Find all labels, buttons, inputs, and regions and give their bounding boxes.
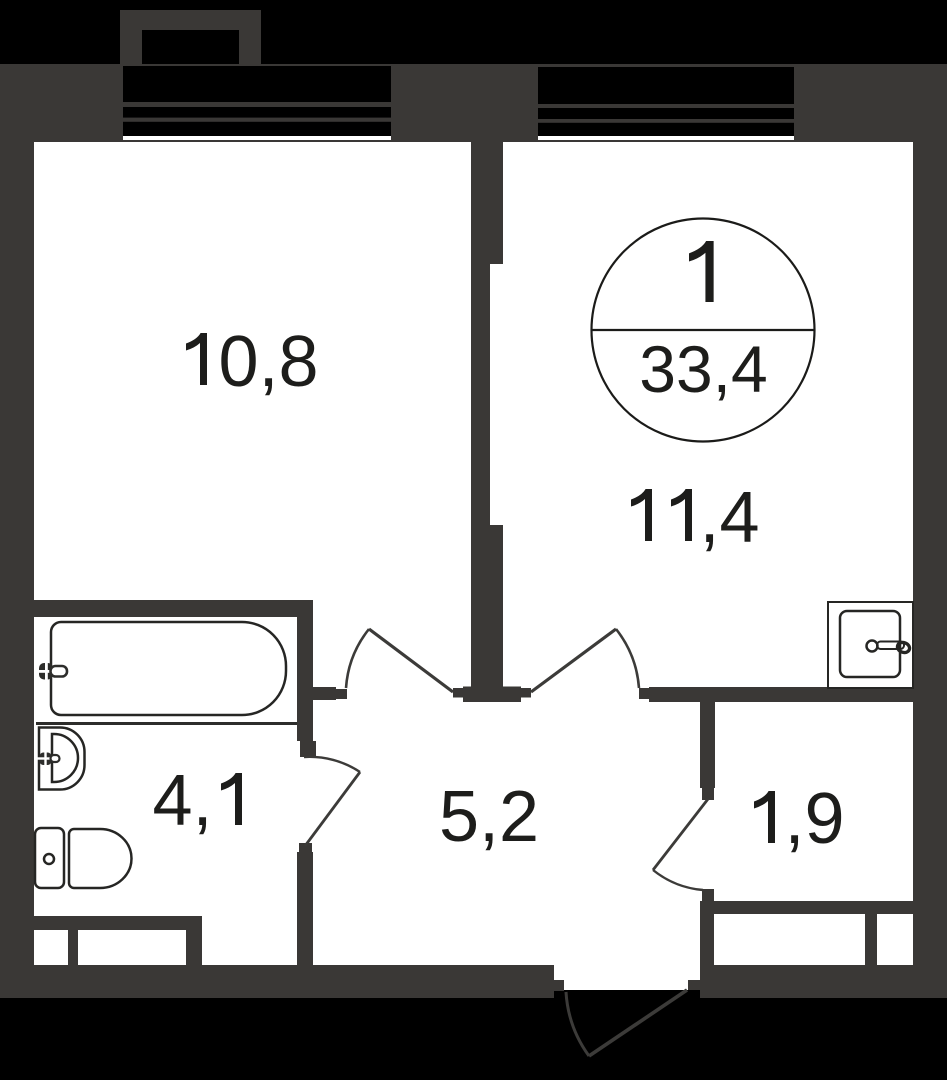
svg-text:,9: ,9 <box>785 779 845 859</box>
svg-text:0,8: 0,8 <box>219 322 319 402</box>
svg-text:5,2: 5,2 <box>439 777 539 857</box>
svg-text:4,: 4, <box>153 761 213 841</box>
svg-text:,4: ,4 <box>700 478 760 558</box>
svg-text:33,4: 33,4 <box>639 332 767 406</box>
